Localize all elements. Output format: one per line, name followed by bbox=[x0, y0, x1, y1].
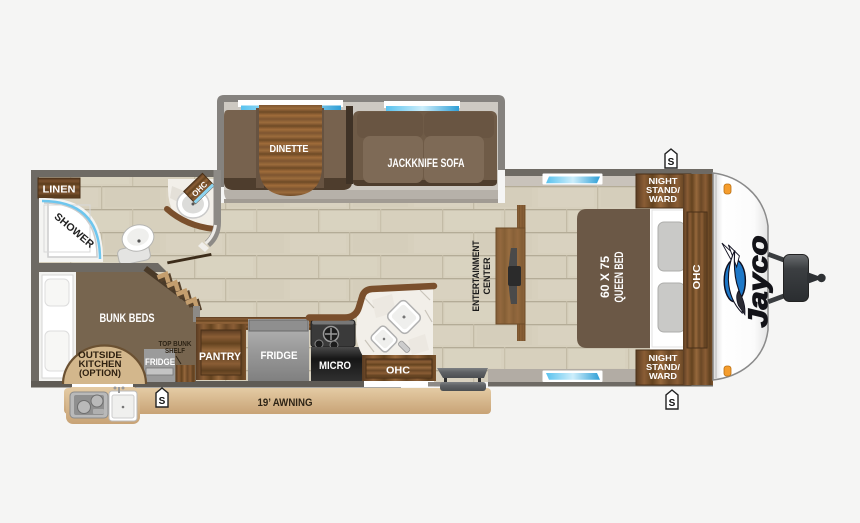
svg-text:SHELF: SHELF bbox=[165, 346, 185, 355]
svg-text:(OPTION): (OPTION) bbox=[79, 368, 121, 378]
svg-text:QUEEN BED: QUEEN BED bbox=[612, 251, 626, 302]
svg-text:S: S bbox=[668, 157, 675, 168]
svg-text:JACKKNIFE SOFA: JACKKNIFE SOFA bbox=[388, 158, 465, 170]
svg-text:S: S bbox=[159, 396, 166, 407]
svg-text:DINETTE: DINETTE bbox=[270, 143, 309, 155]
svg-text:CENTER: CENTER bbox=[482, 257, 493, 294]
svg-text:ENTERTAINMENT: ENTERTAINMENT bbox=[471, 240, 482, 311]
svg-text:WARD: WARD bbox=[649, 371, 677, 381]
svg-text:OHC: OHC bbox=[386, 365, 410, 377]
svg-text:BUNK BEDS: BUNK BEDS bbox=[100, 311, 155, 325]
svg-text:OHC: OHC bbox=[691, 264, 703, 289]
svg-text:FRIDGE: FRIDGE bbox=[145, 357, 175, 367]
svg-text:FRIDGE: FRIDGE bbox=[261, 350, 298, 362]
svg-text:MICRO: MICRO bbox=[319, 360, 351, 372]
svg-text:WARD: WARD bbox=[649, 194, 677, 204]
svg-text:LINEN: LINEN bbox=[43, 184, 76, 196]
svg-text:PANTRY: PANTRY bbox=[199, 351, 242, 363]
svg-text:60 X 75: 60 X 75 bbox=[598, 256, 612, 298]
svg-text:19’ AWNING: 19’ AWNING bbox=[258, 397, 313, 409]
svg-text:S: S bbox=[669, 398, 676, 409]
svg-text:Jayco: Jayco bbox=[743, 236, 773, 328]
